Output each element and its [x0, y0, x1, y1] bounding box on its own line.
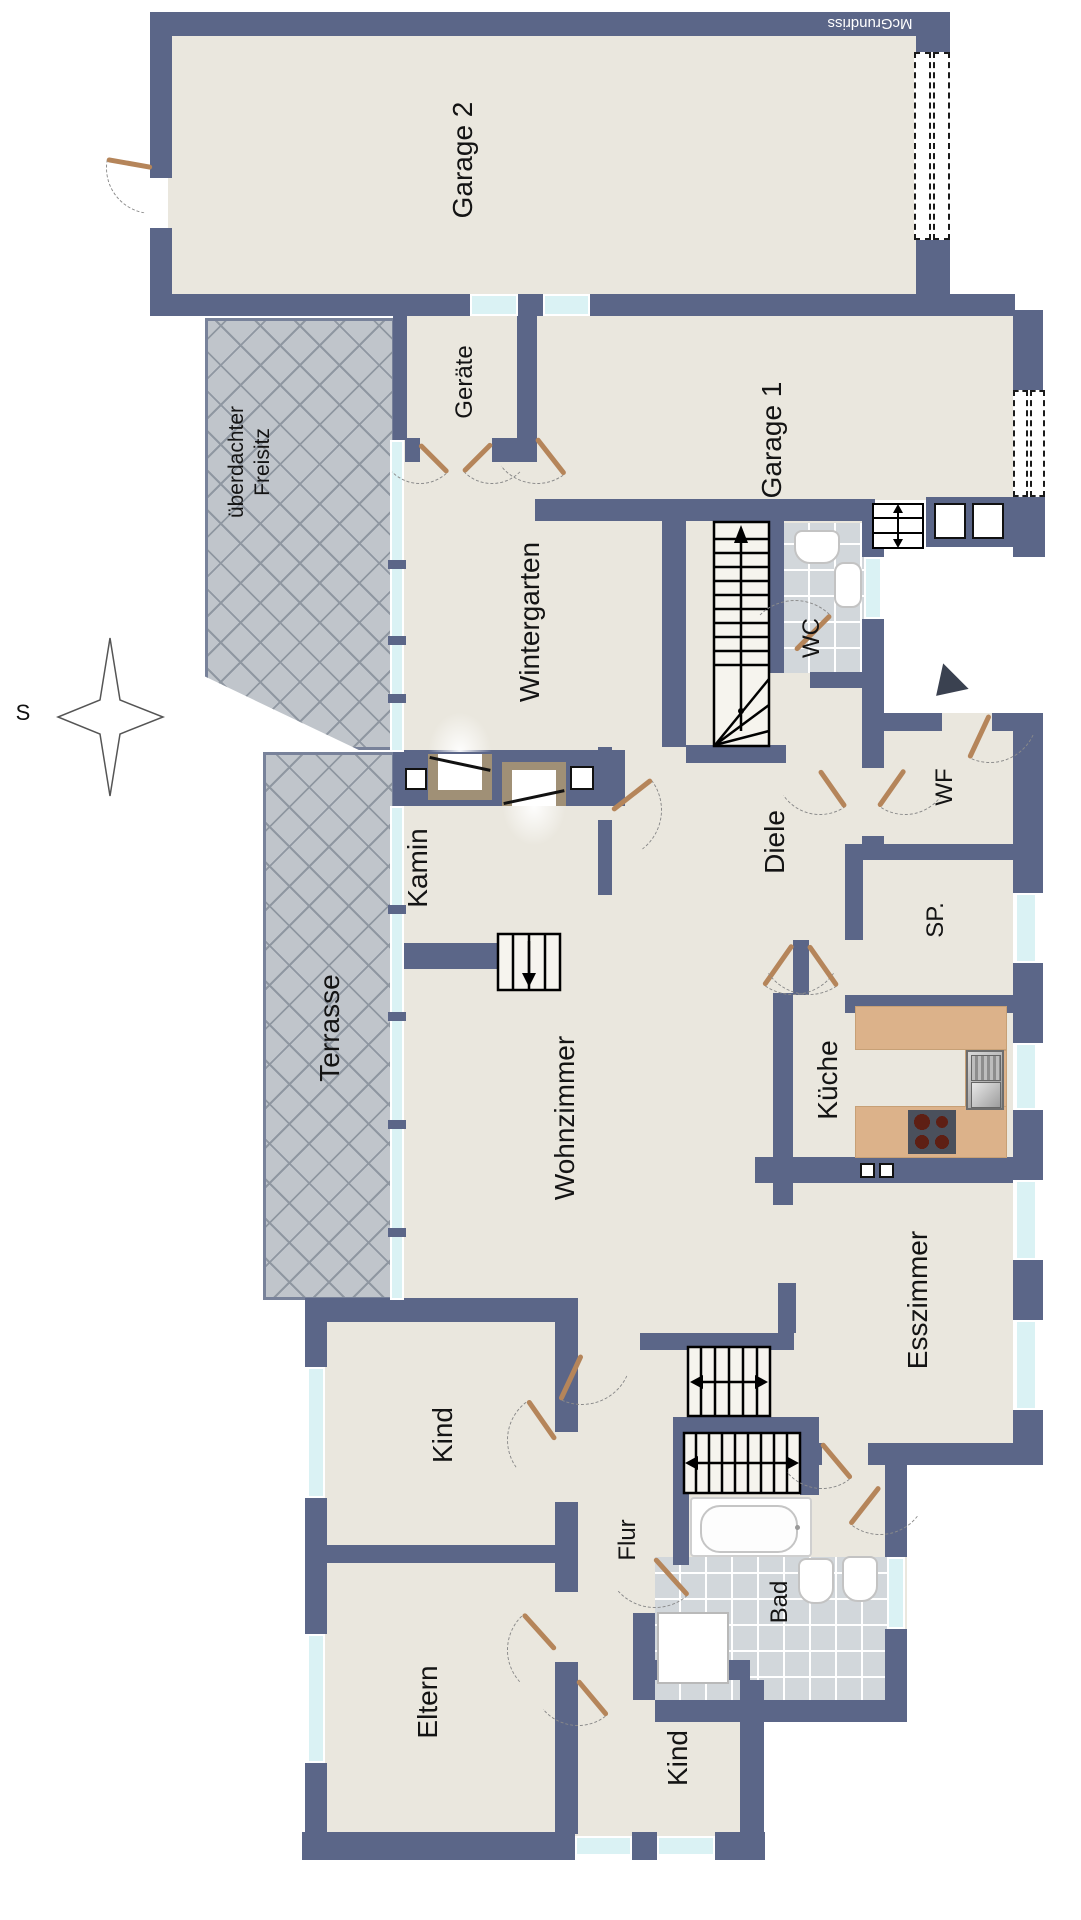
room-label-freisitz: überdachter Freisitz	[215, 377, 285, 547]
garage-door-icon	[914, 52, 931, 240]
room-label-kamin: Kamin	[401, 738, 435, 998]
entry-steps-icon	[872, 503, 924, 549]
wall	[673, 1417, 819, 1433]
entry-pillar	[934, 503, 966, 539]
room-label-wintergarten: Wintergarten	[513, 492, 547, 752]
washbasin-icon	[834, 562, 862, 608]
wall	[150, 228, 172, 296]
fireplace-glow	[428, 712, 492, 752]
wall	[305, 1498, 327, 1634]
wall	[305, 1320, 327, 1367]
wall	[740, 1680, 764, 1834]
fireplace-icon	[502, 762, 566, 806]
entry-pillar	[972, 503, 1004, 539]
room-label-garage-1: Garage 1	[755, 310, 789, 570]
wall	[845, 844, 863, 940]
window	[575, 1836, 632, 1856]
glass-mullion	[388, 1012, 406, 1021]
stove-icon	[908, 1110, 956, 1154]
wall	[305, 1763, 327, 1834]
compass-icon	[58, 638, 163, 796]
wall	[862, 619, 884, 673]
room-label-eltern: Eltern	[411, 1572, 445, 1832]
wall	[778, 1283, 796, 1333]
room-label-wc: WC	[795, 508, 829, 768]
room-label-freisitz-line1: überdachter	[224, 406, 250, 518]
door-swing-icon	[107, 115, 160, 168]
window	[1015, 1320, 1037, 1410]
wall	[1013, 1410, 1043, 1465]
bidet-icon	[842, 1556, 878, 1602]
wall	[302, 1832, 575, 1860]
room-label-sp: SP.	[919, 790, 953, 1050]
window	[1015, 1180, 1037, 1260]
wall	[1013, 1260, 1043, 1320]
wall	[598, 820, 612, 895]
wall	[1013, 497, 1045, 557]
wall	[632, 1832, 657, 1860]
room-label-kind-mitte: Kind	[426, 1305, 460, 1565]
window	[307, 1634, 325, 1763]
wall	[1013, 963, 1043, 1043]
room-label-garage-2: Garage 2	[446, 30, 480, 290]
fireplace-glow	[502, 806, 566, 846]
wall	[150, 294, 470, 316]
garage-door-icon	[1030, 390, 1045, 497]
wall	[916, 36, 950, 52]
step-down-icon	[497, 933, 561, 991]
window	[307, 1367, 325, 1498]
wall	[868, 1443, 1013, 1465]
wall	[862, 836, 884, 844]
room-label-flur: Flur	[611, 1410, 645, 1670]
garage-door-icon	[1013, 390, 1028, 497]
fireplace-icon	[428, 754, 492, 800]
room-label-bad: Bad	[763, 1472, 797, 1732]
watermark: McGrundriss	[800, 13, 940, 35]
window	[543, 294, 590, 316]
room-label-terrasse: Terrasse	[313, 898, 347, 1158]
wall	[662, 521, 686, 747]
chimney-flue	[860, 1163, 875, 1178]
window	[1015, 1043, 1037, 1110]
room-label-esszimmer: Esszimmer	[901, 1170, 935, 1430]
room-label-freisitz-line2: Freisitz	[250, 428, 276, 496]
toilet-icon	[798, 1558, 834, 1604]
room-label-kind-unten: Kind	[661, 1628, 695, 1888]
wall	[885, 1629, 907, 1705]
glass-mullion	[388, 560, 406, 569]
fireplace-flue	[570, 766, 594, 790]
glass-mullion	[388, 1120, 406, 1129]
wall	[916, 240, 950, 296]
wall	[555, 1502, 578, 1592]
wall	[590, 294, 1015, 316]
wall	[393, 316, 407, 440]
compass-south-label: S	[8, 698, 38, 728]
room-label-geraete: Geräte	[448, 252, 482, 512]
garage-door-icon	[933, 52, 950, 240]
wall	[715, 1832, 765, 1860]
stairs-icon	[687, 1346, 771, 1417]
window	[887, 1557, 905, 1629]
room-garage-2	[168, 36, 916, 294]
glass-mullion	[388, 636, 406, 645]
room-label-diele: Diele	[758, 712, 792, 972]
kitchen-sink-icon	[966, 1050, 1004, 1110]
window	[864, 557, 882, 619]
wall	[1013, 310, 1043, 390]
room-label-kueche: Küche	[811, 950, 845, 1210]
chimney-flue	[879, 1163, 894, 1178]
room-label-wohnzimmer: Wohnzimmer	[548, 988, 582, 1248]
glass-mullion	[388, 694, 406, 703]
window	[1015, 893, 1037, 963]
wall	[518, 294, 543, 316]
wall	[1013, 1110, 1043, 1180]
glass-wall-wintergarten	[390, 440, 404, 752]
floor-plan: Garage 2 Geräte Garage 1 überdachter Fre…	[0, 0, 1081, 1920]
glass-mullion	[388, 1228, 406, 1237]
wall	[517, 316, 537, 438]
